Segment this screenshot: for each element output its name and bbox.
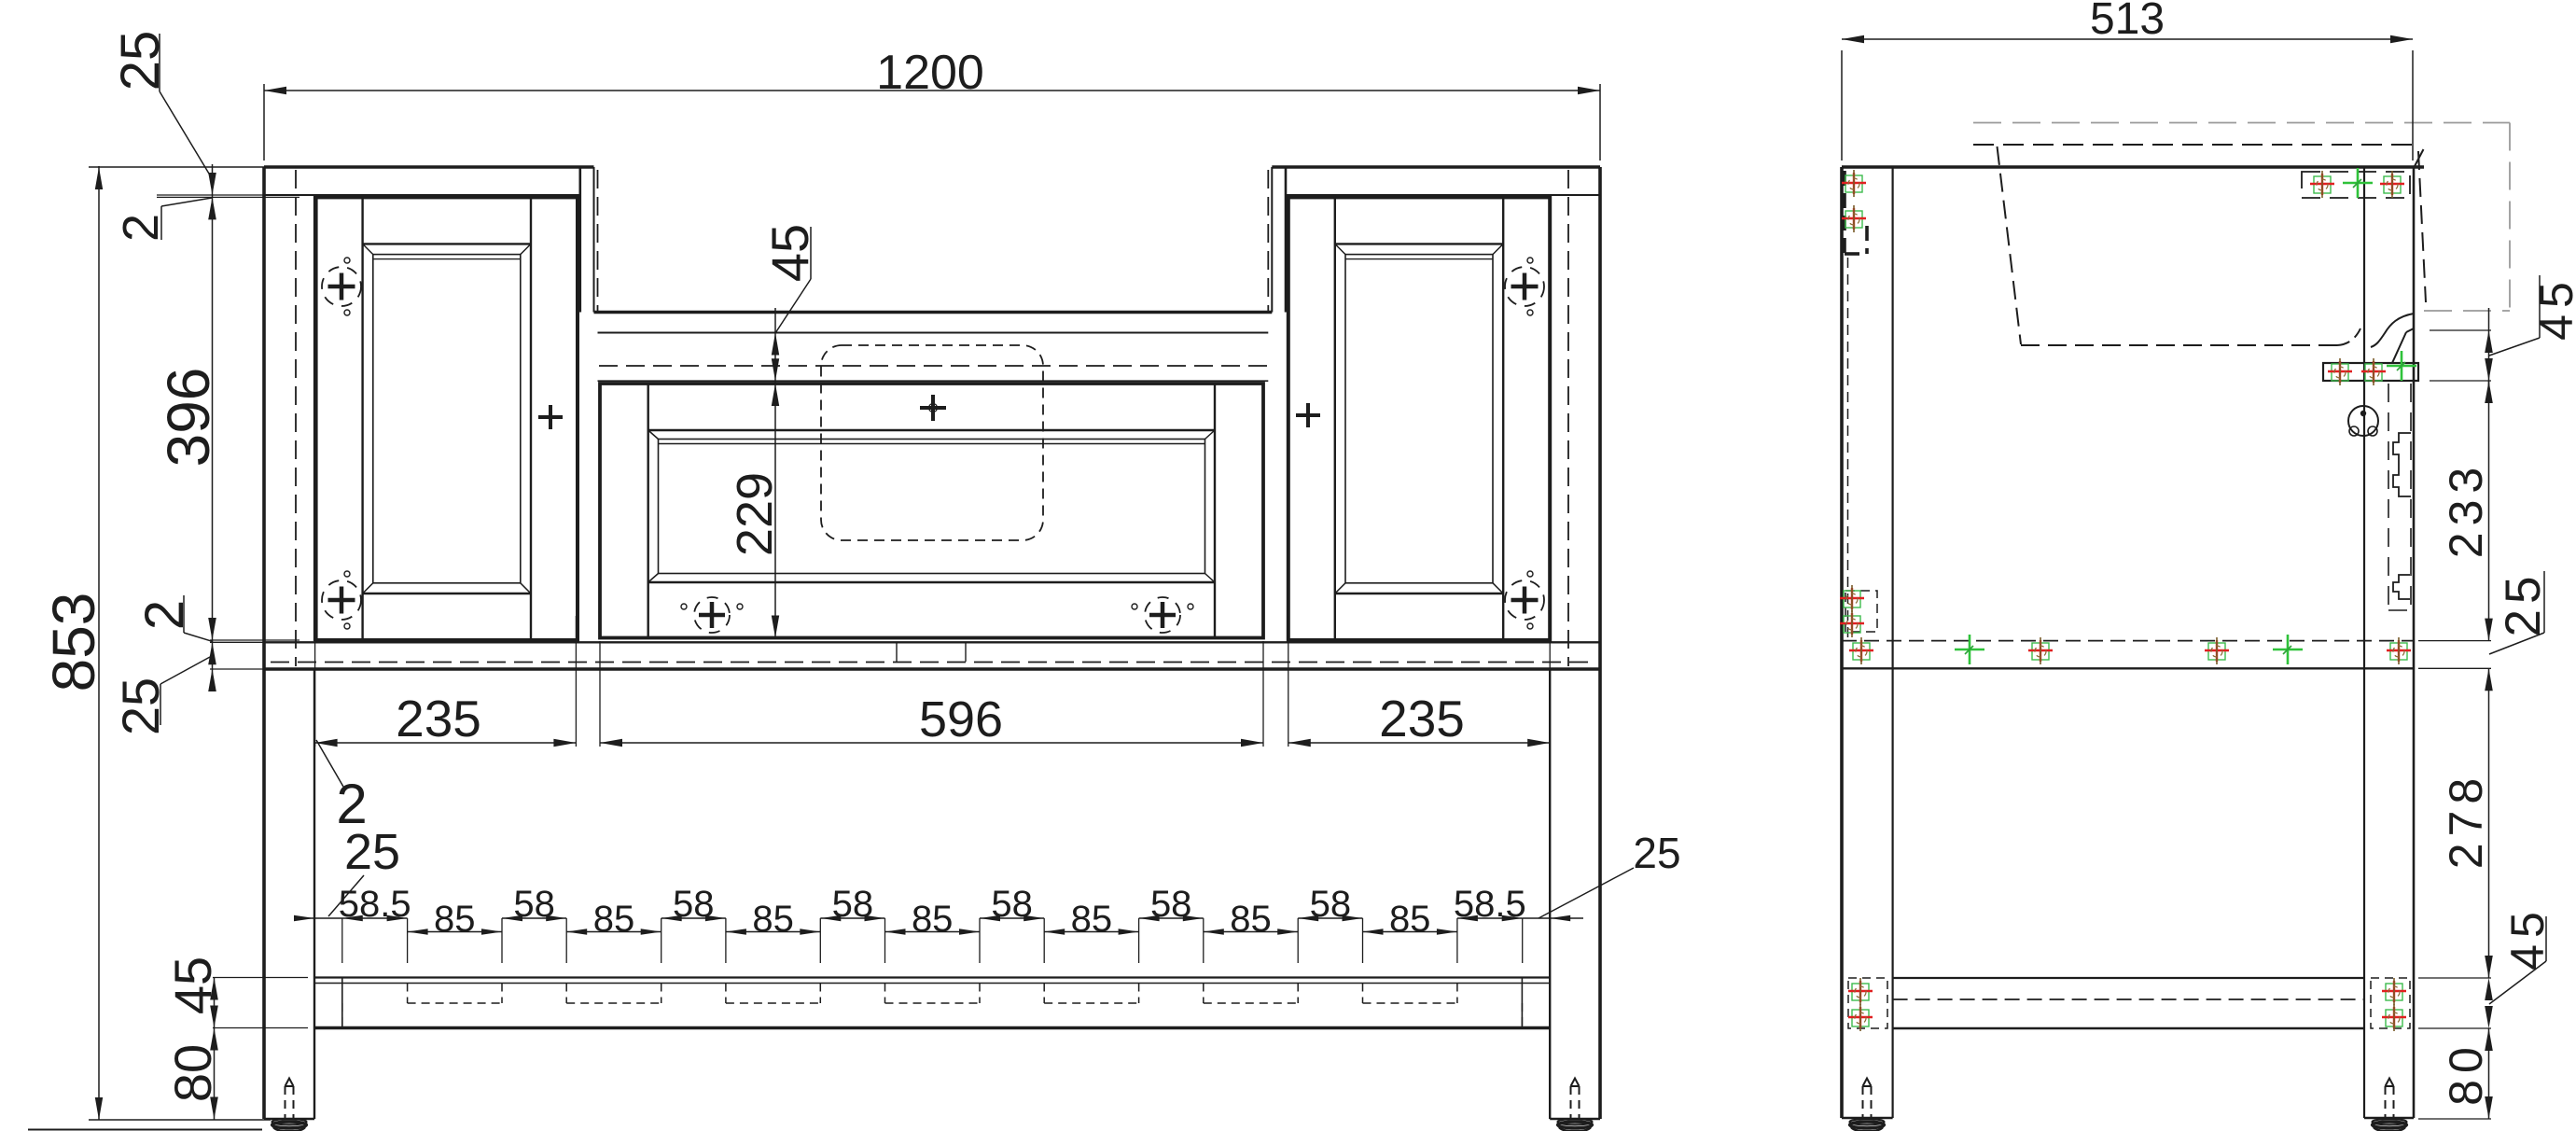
svg-text:58: 58 xyxy=(832,884,874,925)
svg-text:25: 25 xyxy=(2496,571,2551,637)
svg-text:596: 596 xyxy=(919,691,1003,747)
svg-text:229: 229 xyxy=(727,472,783,556)
svg-text:58.5: 58.5 xyxy=(1454,884,1526,925)
svg-text:85: 85 xyxy=(593,899,635,940)
svg-text:85: 85 xyxy=(1389,899,1431,940)
svg-text:235: 235 xyxy=(1379,690,1465,747)
svg-text:2: 2 xyxy=(113,214,169,242)
svg-text:853: 853 xyxy=(40,593,107,692)
svg-text:45: 45 xyxy=(2530,275,2576,341)
svg-text:85: 85 xyxy=(752,899,794,940)
svg-text:58: 58 xyxy=(1310,884,1352,925)
svg-text:85: 85 xyxy=(1230,899,1272,940)
svg-text:58: 58 xyxy=(673,884,715,925)
svg-text:278: 278 xyxy=(2440,772,2492,869)
svg-text:513: 513 xyxy=(2090,0,2165,44)
svg-text:396: 396 xyxy=(155,368,222,468)
svg-text:1200: 1200 xyxy=(876,46,984,100)
svg-text:80: 80 xyxy=(163,1044,222,1102)
svg-text:58: 58 xyxy=(513,884,555,925)
svg-text:58: 58 xyxy=(1150,884,1192,925)
svg-text:58: 58 xyxy=(991,884,1033,925)
svg-text:2: 2 xyxy=(134,600,195,630)
svg-text:80: 80 xyxy=(2440,1040,2492,1106)
svg-text:58.5: 58.5 xyxy=(339,884,411,925)
svg-text:85: 85 xyxy=(434,899,476,940)
svg-text:85: 85 xyxy=(912,899,954,940)
svg-text:45: 45 xyxy=(163,956,222,1014)
svg-text:233: 233 xyxy=(2440,461,2492,558)
svg-text:85: 85 xyxy=(1071,899,1113,940)
svg-text:25: 25 xyxy=(344,824,400,880)
svg-text:235: 235 xyxy=(396,690,481,747)
svg-text:25: 25 xyxy=(1633,829,1680,877)
svg-text:25: 25 xyxy=(110,31,171,91)
